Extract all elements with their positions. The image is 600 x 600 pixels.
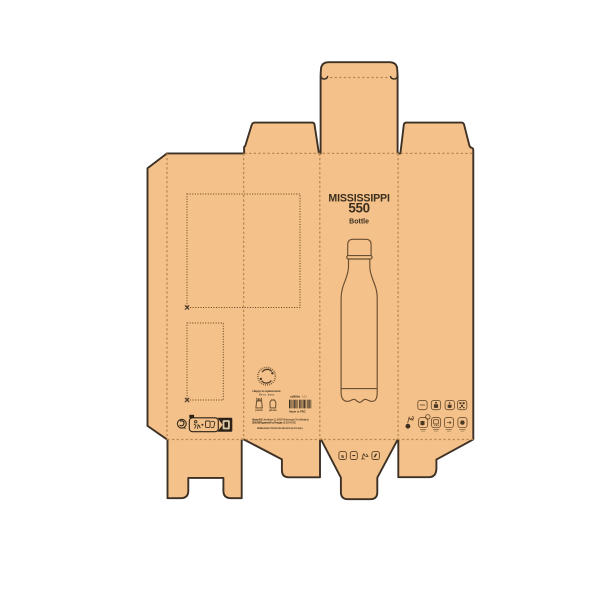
svg-text:-153: -153 xyxy=(301,394,307,398)
svg-text:Bottle: Bottle xyxy=(349,218,369,225)
svg-text:Made in PRC: Made in PRC xyxy=(289,409,305,413)
svg-text:5: 5 xyxy=(341,454,344,460)
svg-text:phone: phone xyxy=(269,409,277,412)
svg-text:this box: this box xyxy=(259,392,274,396)
svg-text:xd899x: xd899x xyxy=(290,394,301,398)
svg-text:550: 550 xyxy=(348,201,369,216)
svg-text:pouch: pouch xyxy=(255,409,263,412)
svg-text:2806-208 Figueira da Foz, Port: 2806-208 Figueira da Foz, Portugal +31 3… xyxy=(252,421,297,424)
svg-text:xindao.com | A Xindao Internat: xindao.com | A Xindao International Grou… xyxy=(257,427,304,430)
